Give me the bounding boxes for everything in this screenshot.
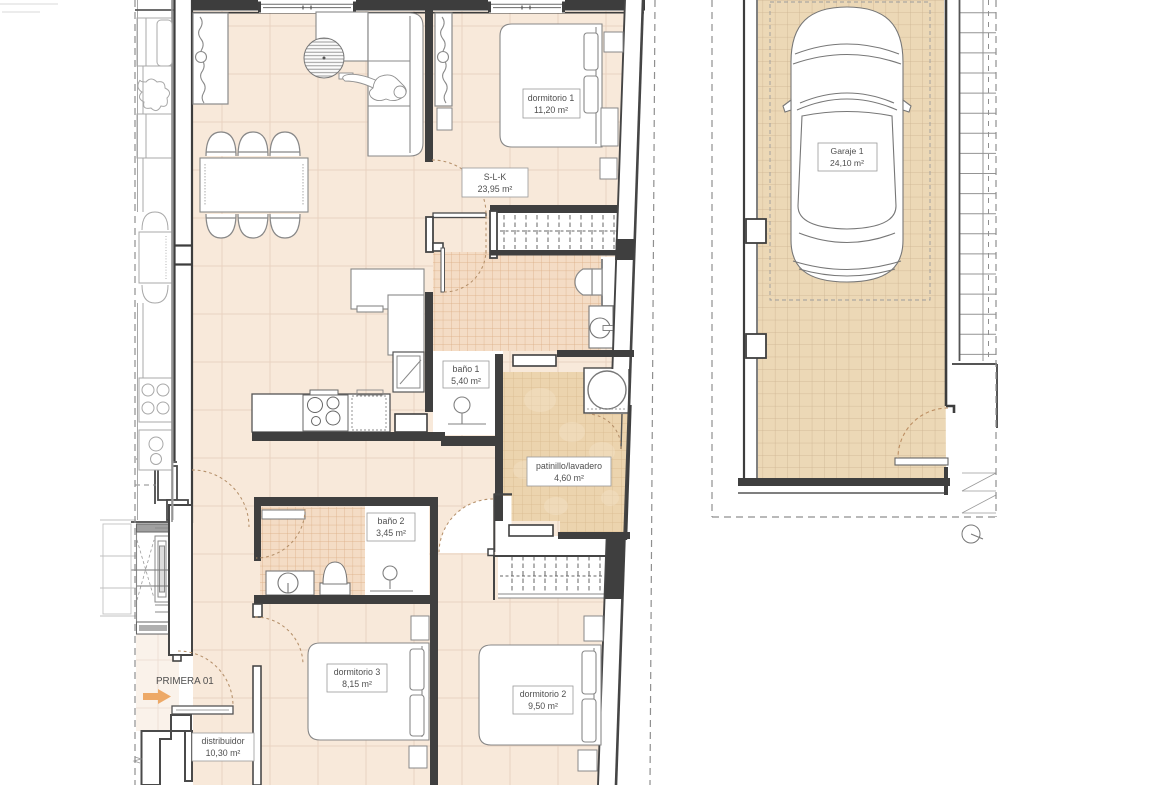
svg-text:distribuidor: distribuidor — [201, 736, 244, 746]
svg-text:baño 2: baño 2 — [378, 516, 405, 526]
svg-text:5,40 m²: 5,40 m² — [451, 376, 481, 386]
svg-text:10,30 m²: 10,30 m² — [206, 748, 241, 758]
svg-text:4,60 m²: 4,60 m² — [554, 473, 584, 483]
svg-text:dormitorio 1: dormitorio 1 — [528, 93, 575, 103]
svg-text:9,50 m²: 9,50 m² — [528, 701, 558, 711]
svg-text:24,10 m²: 24,10 m² — [830, 158, 864, 168]
svg-text:PRIMERA 01: PRIMERA 01 — [156, 676, 214, 687]
svg-text:Garaje 1: Garaje 1 — [831, 146, 864, 156]
svg-text:baño 1: baño 1 — [453, 364, 480, 374]
svg-text:3,45 m²: 3,45 m² — [376, 528, 406, 538]
svg-text:8,15 m²: 8,15 m² — [342, 679, 372, 689]
svg-text:dormitorio 3: dormitorio 3 — [334, 667, 381, 677]
svg-text:patinillo/lavadero: patinillo/lavadero — [536, 461, 602, 471]
svg-text:23,95 m²: 23,95 m² — [478, 184, 513, 194]
svg-text:11,20 m²: 11,20 m² — [534, 105, 568, 115]
svg-text:dormitorio 2: dormitorio 2 — [520, 689, 567, 699]
svg-text:S-L-K: S-L-K — [484, 172, 507, 182]
